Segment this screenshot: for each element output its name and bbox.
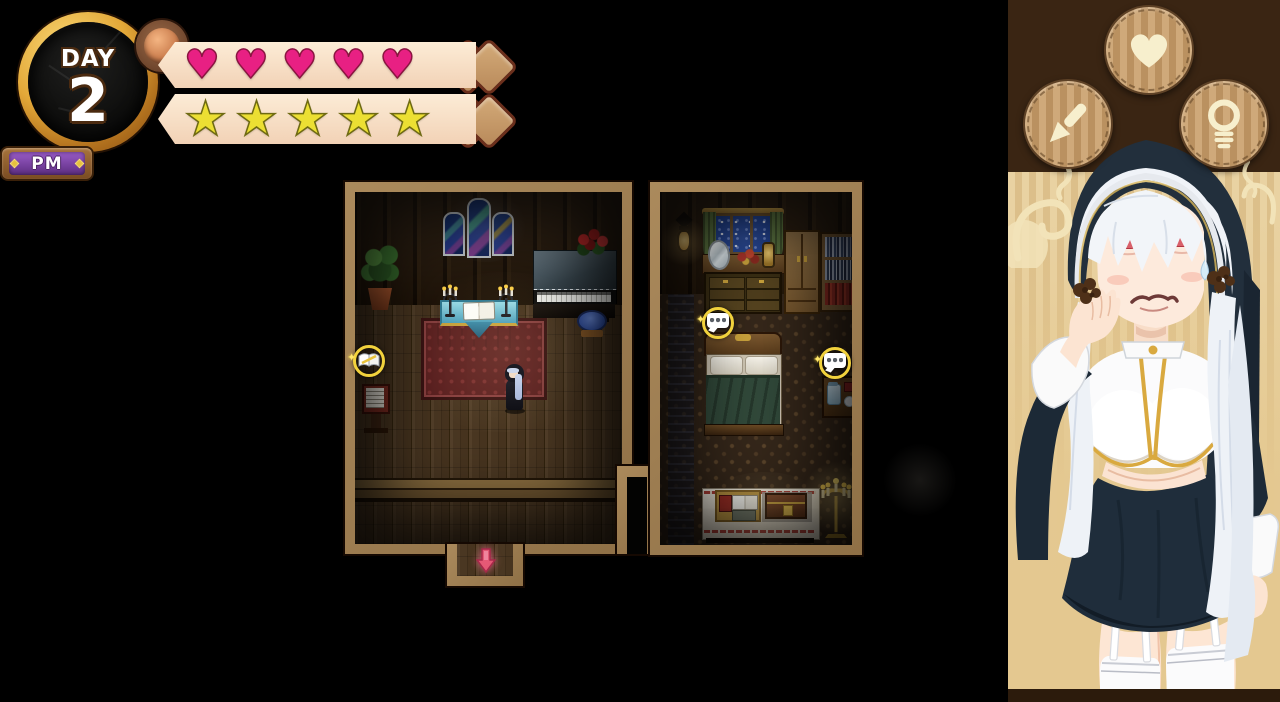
info-sign[interactable] — [362, 384, 390, 434]
heart-icon — [1123, 26, 1175, 74]
day-clock-face: DAY 2 — [28, 22, 148, 142]
cup — [844, 396, 852, 407]
heart-icon: ♥ — [331, 45, 367, 85]
pillow — [710, 356, 743, 375]
heart-icon: ♥ — [282, 45, 318, 85]
writing-desk — [702, 488, 818, 544]
carpet-border — [668, 294, 694, 545]
heart-icon: ♥ — [184, 45, 220, 85]
bed — [704, 332, 782, 434]
open-book-marker[interactable]: ✦ — [353, 345, 385, 377]
game-screen: ✦ — [0, 0, 1280, 702]
pm-badge: PM — [2, 148, 92, 179]
candelabra-right — [497, 282, 515, 318]
ornament-swirl — [1008, 158, 1098, 268]
star-icon: ★ — [337, 97, 380, 141]
nightstand — [822, 376, 852, 418]
sparkle-icon: ✦ — [696, 313, 705, 326]
piano-keys — [537, 292, 611, 302]
jar — [827, 384, 841, 405]
affection-button[interactable] — [1104, 5, 1194, 95]
stars-row: ★★★★★ — [184, 97, 431, 141]
sparkle-icon: ✦ — [347, 351, 356, 364]
red-book — [844, 382, 852, 392]
speech-bubble-icon — [824, 353, 846, 368]
treasure-chest — [765, 493, 807, 519]
ambient-glow — [880, 440, 960, 520]
bookshelf — [820, 232, 852, 312]
hint-button[interactable] — [1179, 79, 1269, 169]
blanket — [706, 375, 780, 428]
wall-lamp — [672, 214, 696, 260]
chapel-room-interior — [355, 192, 622, 544]
panel-bottom-bar — [1008, 689, 1280, 702]
book-tray — [715, 490, 761, 522]
speech-bubble-marker[interactable]: ✦ — [819, 347, 851, 379]
gold-candelabra — [818, 474, 852, 540]
speech-bubble-icon — [707, 313, 729, 328]
meridiem-label: PM — [31, 154, 62, 174]
star-icon: ★ — [235, 97, 278, 141]
stool — [577, 310, 607, 338]
heart-icon: ♥ — [233, 45, 269, 85]
pillow — [745, 356, 778, 375]
side-panel — [1008, 0, 1280, 702]
stained-glass-window — [492, 212, 514, 256]
floor-step — [355, 478, 618, 502]
south-exit-door[interactable] — [447, 544, 523, 586]
ornament-swirl — [1236, 158, 1280, 228]
lightbulb-icon — [1199, 97, 1249, 151]
sparkle-icon: ✦ — [813, 353, 822, 366]
stained-glass-window — [467, 198, 491, 258]
flower-pot — [571, 226, 613, 260]
foot-rail — [704, 424, 784, 436]
vanity-flowers — [734, 246, 760, 268]
gem-icon — [75, 159, 85, 169]
nun-player-sprite — [502, 364, 528, 414]
open-book — [463, 301, 496, 320]
wardrobe — [784, 230, 820, 314]
star-icon: ★ — [184, 97, 227, 141]
notes-button[interactable] — [1023, 79, 1113, 169]
stars-bar: ★★★★★ — [158, 94, 476, 144]
chapel-room-wall — [345, 182, 632, 554]
speech-bubble-marker[interactable]: ✦ — [702, 307, 734, 339]
red-book — [719, 495, 732, 512]
open-book-icon — [358, 352, 380, 369]
hud: ♥♥♥♥♥ ★★★★★ DAY 2 PM — [0, 0, 520, 190]
table-lantern — [762, 242, 775, 268]
heart-icon: ♥ — [379, 45, 415, 85]
star-icon: ★ — [286, 97, 329, 141]
stained-glass-window — [443, 212, 465, 256]
hearts-row: ♥♥♥♥♥ — [184, 45, 415, 85]
potted-plant — [357, 240, 403, 316]
open-ledger — [732, 495, 758, 510]
gem-icon — [10, 159, 20, 169]
star-icon: ★ — [388, 97, 431, 141]
exit-arrow-icon — [476, 548, 496, 574]
hearts-bar: ♥♥♥♥♥ — [158, 42, 476, 88]
pencil-icon — [1043, 99, 1093, 149]
candelabra-left — [441, 282, 459, 318]
day-badge: DAY 2 — [18, 12, 158, 152]
day-number: 2 — [28, 66, 148, 136]
